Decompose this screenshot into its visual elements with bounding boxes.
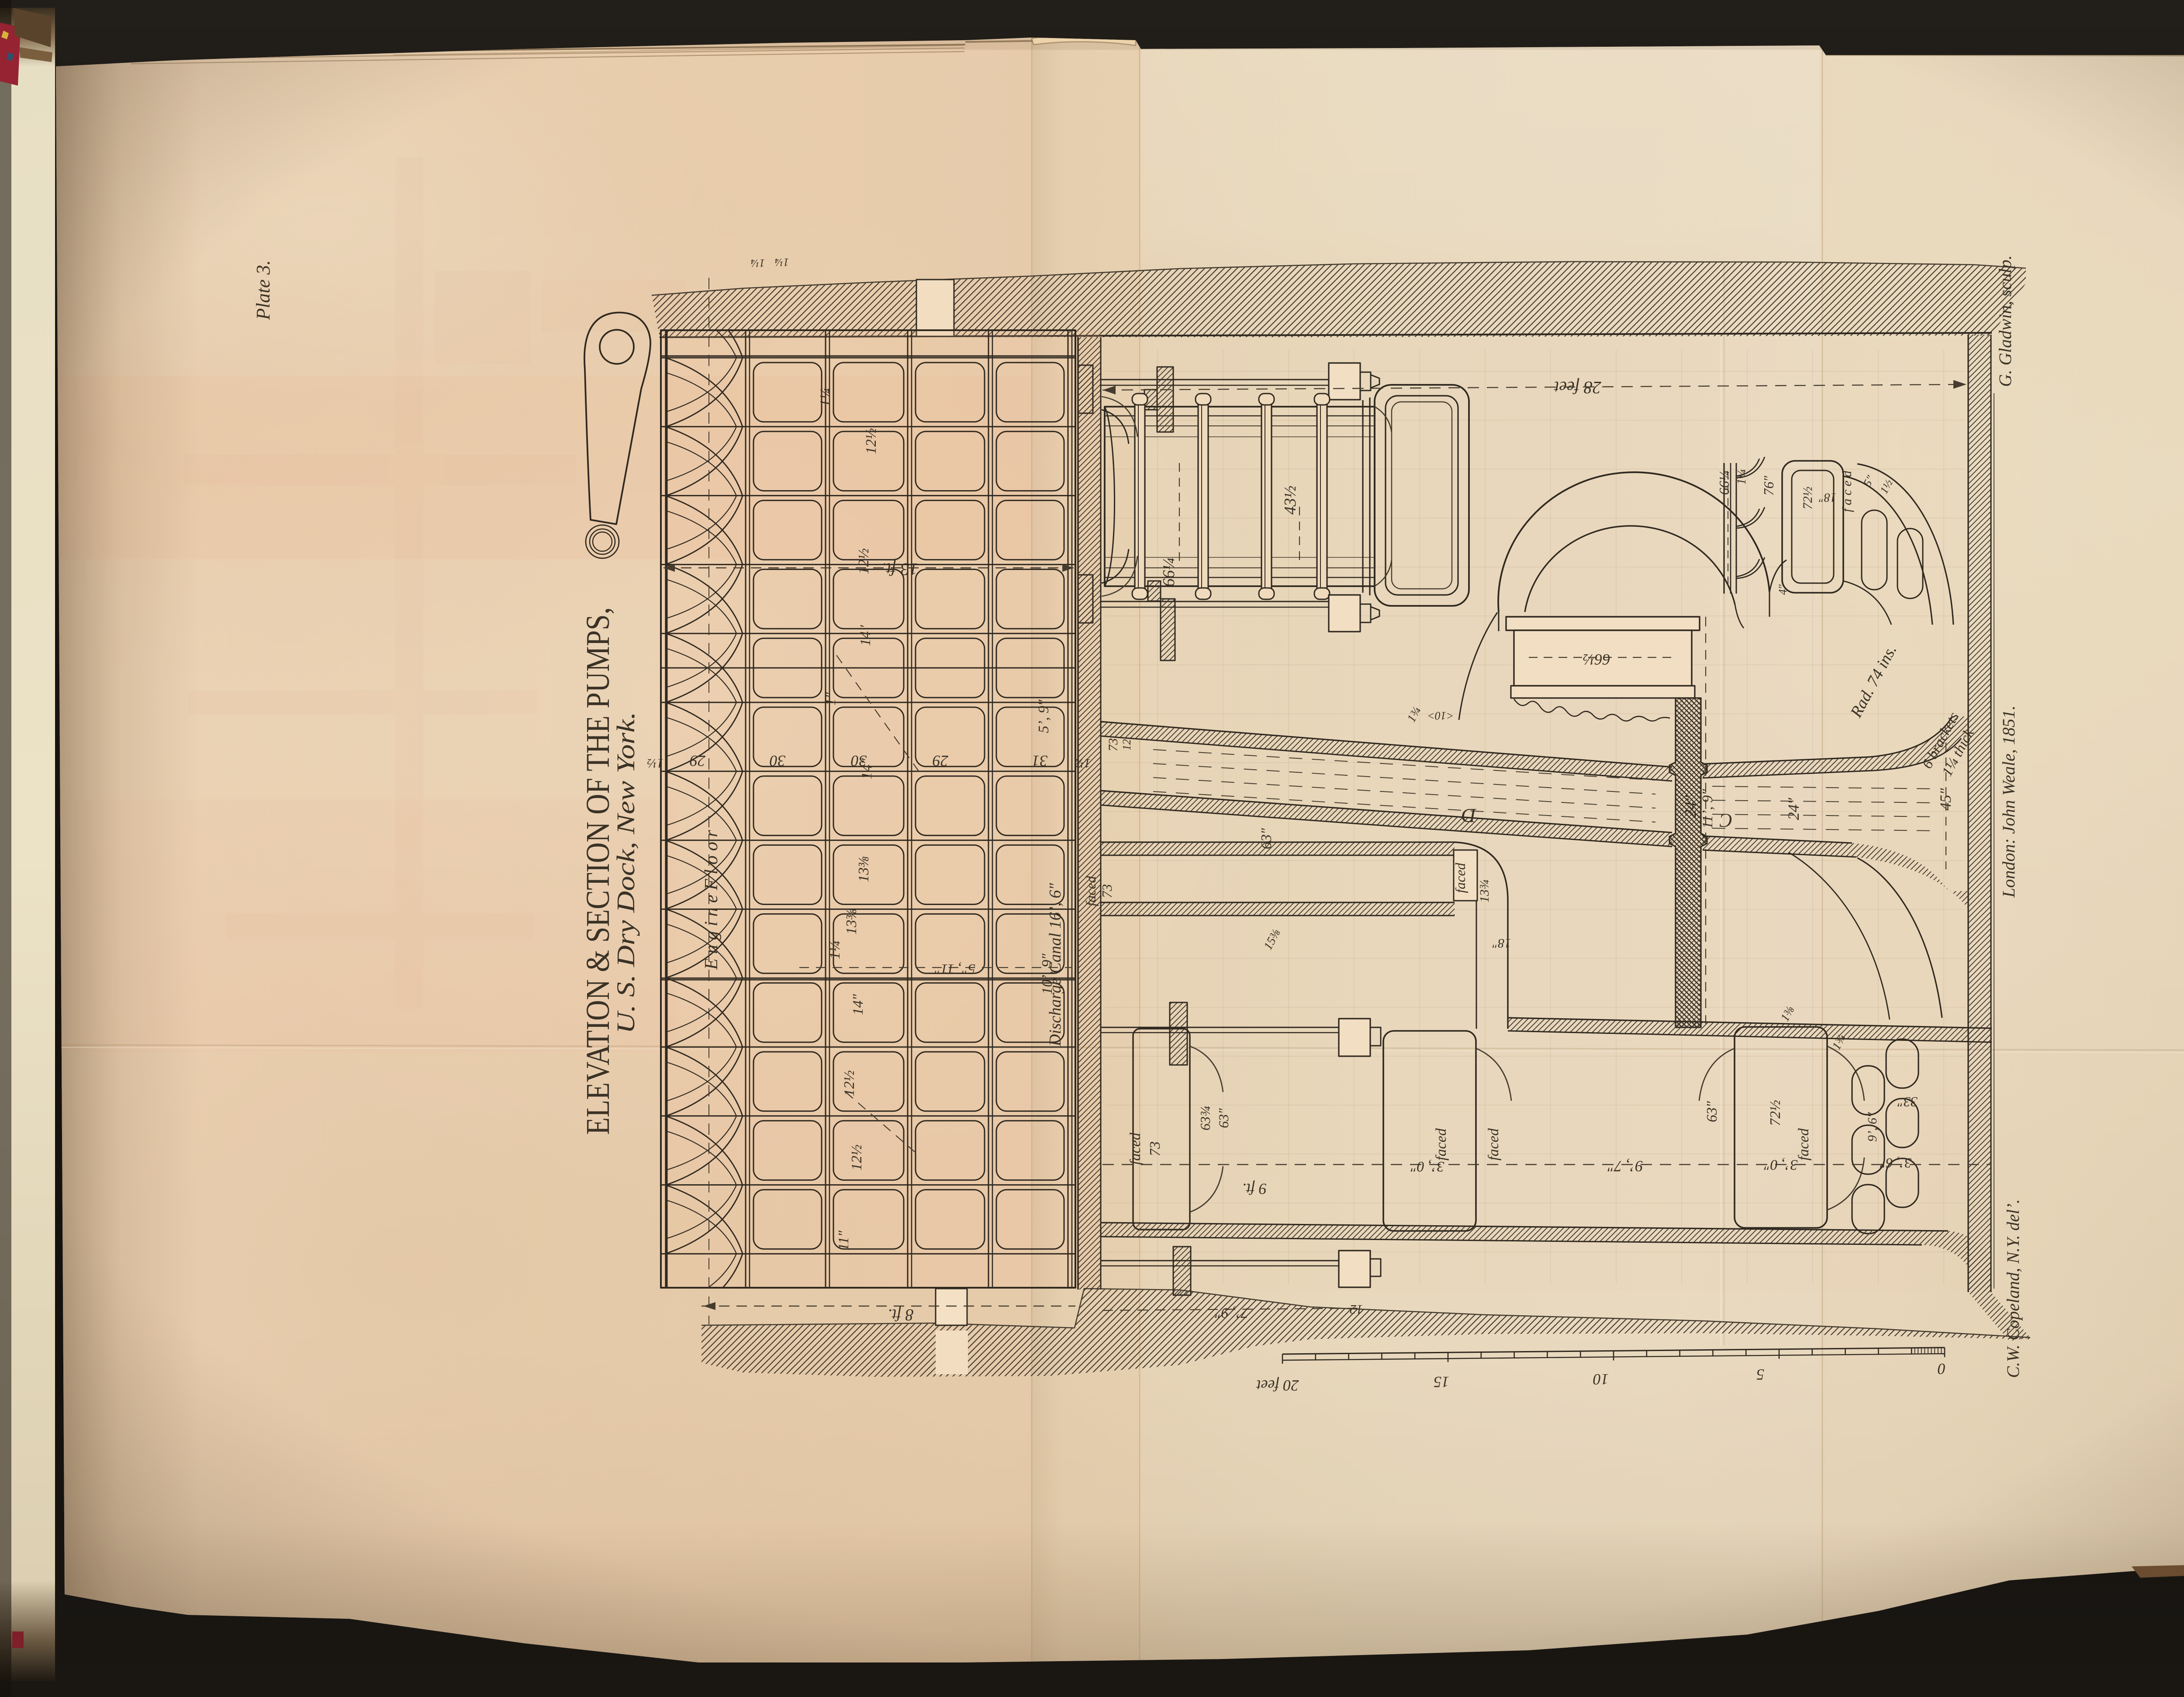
svg-text:28 feet: 28 feet	[1554, 378, 1601, 397]
svg-text:72½: 72½	[1800, 487, 1815, 510]
svg-text:31: 31	[1032, 752, 1048, 770]
svg-text:18″: 18″	[1819, 491, 1836, 504]
svg-text:13⅜: 13⅜	[843, 909, 860, 935]
svg-text:29: 29	[690, 752, 705, 770]
svg-text:faced: faced	[1083, 875, 1099, 906]
svg-text:73: 73	[1099, 884, 1115, 898]
svg-text:11″: 11″	[836, 1230, 852, 1250]
svg-text:63″: 63″	[1258, 828, 1275, 849]
svg-text:14″: 14″	[850, 994, 866, 1015]
svg-text:12½: 12½	[841, 1070, 857, 1096]
svg-text:ELEVATION & SECTION OF THE PUM: ELEVATION & SECTION OF THE PUMPS,	[580, 607, 616, 1135]
svg-text:63¾: 63¾	[1197, 1106, 1213, 1130]
svg-text:18″: 18″	[1492, 936, 1511, 950]
svg-text:12½: 12½	[849, 1144, 865, 1171]
svg-text:5’, 9″: 5’, 9″	[1036, 699, 1052, 733]
svg-text:7’, 9″: 7’, 9″	[1215, 1305, 1248, 1321]
svg-text:24″: 24″	[1785, 798, 1802, 820]
svg-text:1″: 1″	[822, 692, 839, 706]
svg-text:1¼: 1¼	[1735, 470, 1749, 485]
svg-text:9’, 6″: 9’, 6″	[1865, 1112, 1880, 1142]
svg-text:12½: 12½	[863, 428, 879, 454]
svg-text:66¼: 66¼	[1716, 470, 1732, 495]
svg-text:Plate 3.: Plate 3.	[252, 260, 274, 321]
svg-text:73: 73	[1106, 738, 1120, 751]
svg-text:1¼: 1¼	[775, 256, 789, 269]
svg-text:D: D	[1462, 805, 1476, 827]
svg-text:13¾: 13¾	[1477, 880, 1492, 903]
svg-text:C.W. Copeland, N.Y. del’.: C.W. Copeland, N.Y. del’.	[2003, 1199, 2023, 1378]
svg-text:1¼: 1¼	[817, 388, 833, 407]
svg-text:66½: 66½	[1583, 651, 1610, 668]
svg-text:C: C	[1720, 810, 1733, 831]
svg-text:14″: 14″	[857, 625, 874, 646]
svg-text:63″: 63″	[1704, 1101, 1720, 1122]
svg-text:5: 5	[1756, 1366, 1764, 1383]
svg-text:13⅜: 13⅜	[856, 856, 872, 882]
svg-text:15: 15	[1434, 1373, 1449, 1391]
svg-text:1½: 1½	[647, 756, 663, 771]
svg-text:76″: 76″	[1761, 476, 1776, 496]
svg-text:3’, 6″: 3’, 6″	[1880, 1155, 1912, 1171]
svg-text:66¼: 66¼	[1160, 558, 1178, 587]
svg-text:0: 0	[1938, 1360, 1946, 1378]
svg-text:29: 29	[933, 752, 948, 770]
svg-text:1¼: 1¼	[827, 941, 843, 960]
svg-text:12: 12	[1350, 1302, 1363, 1317]
svg-text:63″: 63″	[1216, 1108, 1231, 1128]
svg-text:12: 12	[1120, 739, 1133, 750]
svg-text:10: 10	[1593, 1371, 1609, 1388]
svg-text:E n g i n e F l o o r: E n g i n e F l o o r	[702, 830, 722, 970]
svg-text:9 ft.: 9 ft.	[1242, 1180, 1267, 1198]
svg-text:1¼: 1¼	[751, 257, 765, 270]
svg-text:4″: 4″	[1776, 584, 1789, 595]
svg-text:faced: faced	[1433, 1128, 1449, 1161]
svg-text:faced: faced	[1127, 1132, 1144, 1165]
svg-text:11’, 9″: 11’, 9″	[1700, 789, 1716, 829]
svg-text:20 feet: 20 feet	[1256, 1377, 1299, 1394]
svg-text:3’, 0″: 3’, 0″	[1764, 1157, 1798, 1173]
svg-text:U. S. Dry Dock, New York.: U. S. Dry Dock, New York.	[612, 712, 640, 1034]
svg-text:72½: 72½	[1767, 1100, 1783, 1126]
svg-text:5″, 11″: 5″, 11″	[934, 961, 975, 977]
svg-text:8 ft.: 8 ft.	[888, 1306, 913, 1324]
svg-text:faced: faced	[1452, 862, 1468, 893]
svg-text:London: John Weale, 1851.: London: John Weale, 1851.	[1999, 705, 2018, 898]
svg-text:73: 73	[1147, 1141, 1163, 1156]
svg-text:faced: faced	[1796, 1128, 1812, 1161]
svg-text:G. Gladwin, sculp.: G. Gladwin, sculp.	[1995, 255, 2015, 387]
svg-text:43½: 43½	[1281, 486, 1299, 515]
svg-text:10’, 9″: 10’, 9″	[1039, 953, 1055, 994]
svg-text:12½: 12½	[856, 548, 872, 574]
svg-text:9’, 7″: 9’, 7″	[1607, 1158, 1643, 1175]
svg-text:faced: faced	[1486, 1128, 1502, 1161]
svg-text:24″: 24″	[1682, 795, 1699, 818]
svg-text:30: 30	[770, 752, 786, 770]
svg-text:33″: 33″	[1897, 1094, 1918, 1110]
svg-text:f a c e d: f a c e d	[1840, 470, 1854, 512]
svg-text:<10>: <10>	[1427, 709, 1454, 722]
svg-text:13 ft.: 13 ft.	[882, 560, 918, 579]
svg-text:14″: 14″	[859, 758, 875, 779]
